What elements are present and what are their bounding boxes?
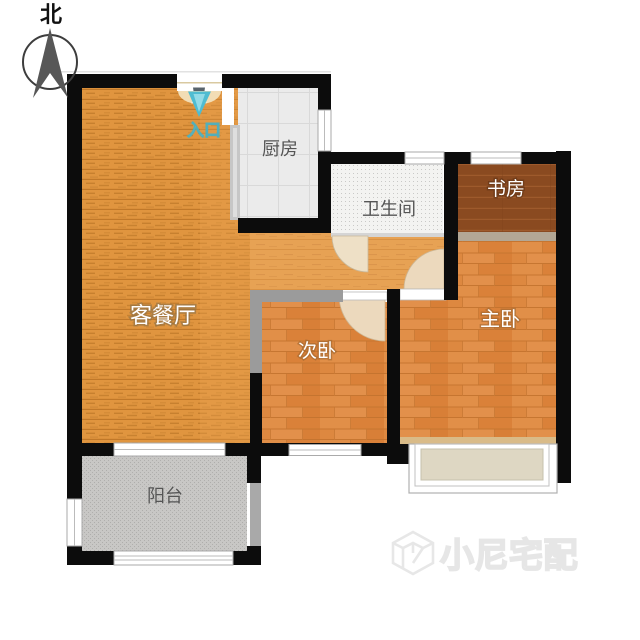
svg-text:厨房: 厨房 xyxy=(262,139,298,159)
svg-text:书房: 书房 xyxy=(487,178,525,200)
svg-text:卫生间: 卫生间 xyxy=(362,199,416,219)
svg-text:入口: 入口 xyxy=(187,121,221,140)
svg-text:次卧: 次卧 xyxy=(298,340,336,362)
svg-text:客餐厅: 客餐厅 xyxy=(130,303,196,328)
svg-text:阳台: 阳台 xyxy=(147,486,183,506)
svg-text:北: 北 xyxy=(40,2,62,27)
svg-text:主卧: 主卧 xyxy=(480,308,520,331)
svg-text:小尼宅配: 小尼宅配 xyxy=(440,536,578,575)
